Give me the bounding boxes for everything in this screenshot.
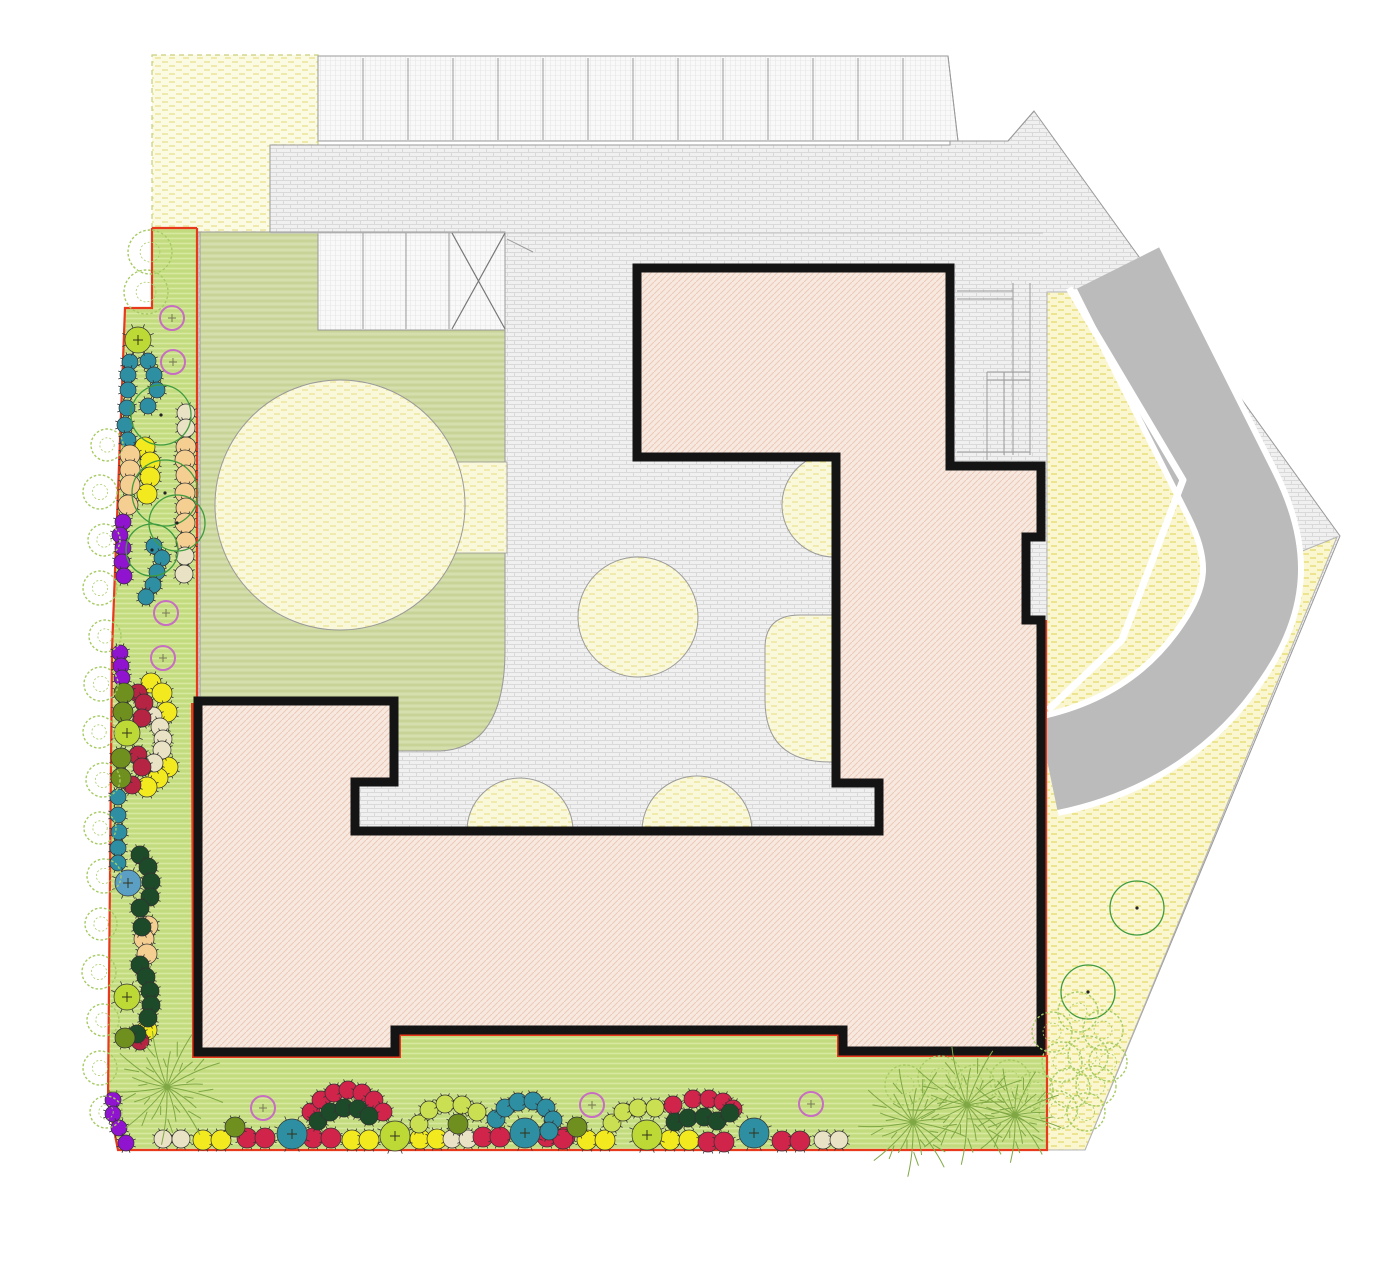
parking-row-west	[318, 232, 505, 330]
play-area-circle	[215, 380, 465, 630]
site-plan-svg	[0, 0, 1374, 1270]
sandpit-circle	[578, 557, 698, 677]
landscape-site-plan	[0, 0, 1374, 1270]
parking-row-north	[318, 56, 958, 141]
terrace-rounded-east	[765, 615, 836, 762]
